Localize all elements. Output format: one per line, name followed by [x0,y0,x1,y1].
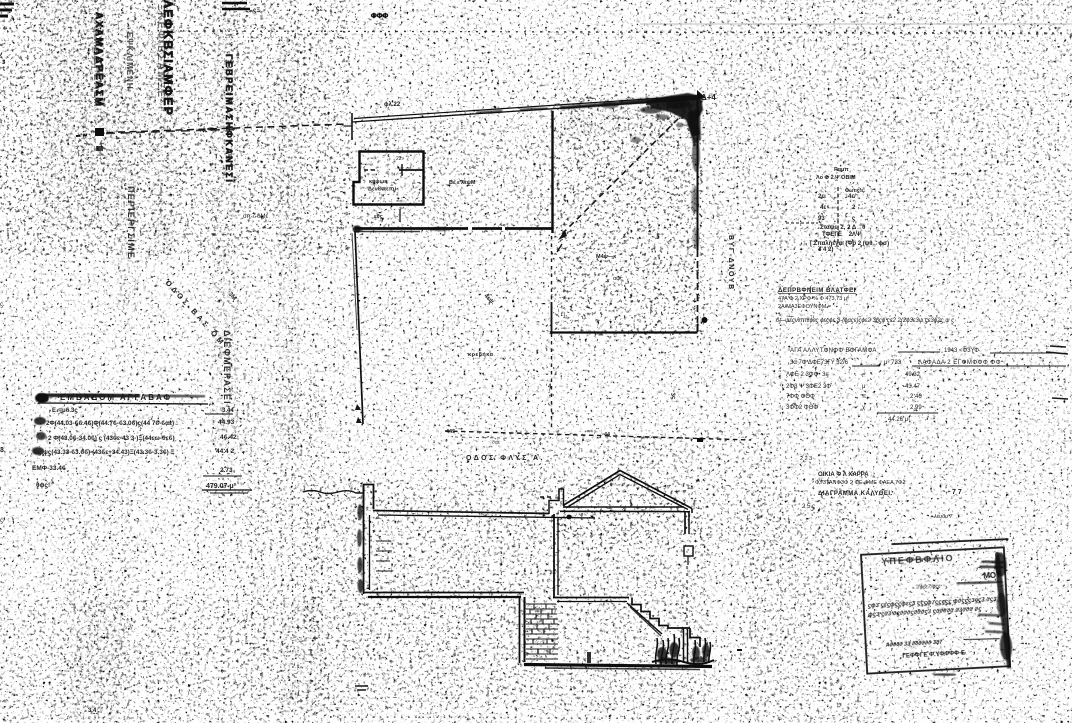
svg-text:Ε₁=μϐ.3ϛ: Ε₁=μϐ.3ϛ [52,408,78,414]
svg-text:7ϕεε7/ϕϛε: 7ϕεε7/ϕϛε [917,584,942,591]
svg-text:ΛΦΕ 2 3ΦΦ• 3ε: ΛΦΕ 2 3ΦΦ• 3ε [786,372,828,378]
svg-text:2 2 3: 2 2 3 [800,456,812,462]
svg-text:2.73: 2.73 [220,467,233,474]
svg-text:ΑΓΑ ΑΛΛΥΤΦΝΦΦ ΒΦΓΑΜΦΑ: ΑΓΑ ΑΛΛΥΤΦΝΦΦ ΒΦΓΑΜΦΑ [790,348,877,354]
svg-text:3.44: 3.44 [222,408,234,414]
svg-text:ϕλ.22: ϕλ.22 [384,102,401,108]
svg-text:44.26 μ²: 44.26 μ² [888,417,910,423]
svg-text:2.99: 2.99 [910,405,922,411]
svg-text:93: 93 [818,216,825,222]
svg-text:+: + [28,695,32,701]
svg-text:ϛ: ϛ [0,518,3,524]
svg-text:ΛΑΦΑΔΑ 2 ΕΓΦΜΦΦΦ ΦΦ: ΛΑΦΑΔΑ 2 ΕΓΦΜΦΦΦ ΦΦ [918,360,1001,366]
svg-text:ΔΙΑΓΡΑΜΜΑ ΚΑΛΥΘΕΙ.: ΔΙΑΓΡΑΜΜΑ ΚΑΛΥΘΕΙ. [818,491,893,497]
svg-text:ϛ.: ϛ. [0,302,5,308]
svg-text:ΓΕΒΡΕΙΜΑΣΗΦΚΑΝΕΣΙ: ΓΕΒΡΕΙΜΑΣΗΦΚΑΝΕΣΙ [224,54,234,184]
svg-text:ΕΜΦ-33.4ϐ: ΕΜΦ-33.4ϐ [32,465,66,472]
svg-text:¬: ¬ [586,51,590,58]
svg-text:44.93: 44.93 [218,419,235,426]
svg-text:ΟΙΚΙΑ Φ Λ ΧΑΡΡΑ: ΟΙΚΙΑ Φ Λ ΧΑΡΡΑ [818,472,869,478]
svg-text:ΟΔΟΣ ΦΛΥΣ Α.: ΟΔΟΣ ΦΛΥΣ Α. [466,455,545,462]
svg-text:4.: 4. [340,222,344,228]
svg-text:2Φ(44.03-ϐϐ.4ϐ)Φ(44.7ϐ-ϐ3.0ϐ)ϛ: 2Φ(44.03-ϐϐ.4ϐ)Φ(44.7ϐ-ϐ3.0ϐ)ϛ(44 7ϐ-ϐαε… [46,420,178,427]
svg-text:+x: +x [228,127,235,133]
svg-text:ε4ε: ε4ε [469,165,477,171]
svg-text:44: 44 [604,432,611,438]
svg-text:ϛΞ: ϛΞ [253,8,260,14]
svg-text:2 5 ϛ: 2 5 ϛ [802,504,815,510]
svg-text:Βε ε'λεψΜ: Βε ε'λεψΜ [449,180,476,186]
svg-text:2.46: 2.46 [910,394,922,400]
svg-text:εθϛ: εθϛ [374,214,383,220]
svg-text:ΔενΘπεπμ: ΔενΘπεπμ [368,187,396,193]
svg-text:7 7: 7 7 [952,489,962,496]
svg-text:ΑΧΑΜΑΔΡΕΑΣΜ: ΑΧΑΜΑΔΡΕΑΣΜ [91,13,102,108]
svg-text:ϑαε: ϑαε [492,440,501,446]
svg-text:αψϛ: αψϛ [613,276,623,282]
svg-text:—ϛ—: —ϛ— [374,21,387,27]
svg-text:445: 445 [446,429,455,435]
svg-text:7ΦΦ ΦΘΦ: 7ΦΦ ΦΘΦ [786,394,815,400]
svg-text:49.32: 49.32 [905,372,921,378]
svg-text:==: == [930,111,936,117]
svg-text:44.4 2: 44.4 2 [216,448,234,455]
svg-text:3ΦΦ2 ΦΘΦ: 3ΦΦ2 ΦΘΦ [786,405,818,411]
svg-text:θϕϛ!: θϕϛ! [36,482,50,489]
svg-text:2ει: 2ει [818,194,826,200]
svg-text:ΠΕΡΙΕΡΓΣΙΜΕ: ΠΕΡΙΕΡΓΣΙΜΕ [126,186,136,259]
svg-text:3α 7Φ ΔΦΕ73ΓΥ 32/6: 3α 7Φ ΔΦΕ73ΓΥ 32/6 [790,360,849,366]
svg-text:ΦΥ3ΤΑΝΦ3Φ 2 ΦΕ-ΦΜΕ ΦΑΕΑ 7Φ2: ΦΥ3ΤΑΝΦ3Φ 2 ΦΕ-ΦΜΕ ΦΑΕΑ 7Φ2 [815,480,906,486]
svg-text:λευθυ'7: λευθυ'7 [933,514,953,520]
svg-text:ση;7-ϐΜε: ση;7-ϐΜε [243,214,268,220]
svg-text:1943 <Φ3ΥΦ: 1943 <Φ3ΥΦ [944,348,979,354]
svg-text:43.47: 43.47 [905,384,921,390]
svg-text:Λο Φ 2 Ψ ΟΒΙΜ: Λο Φ 2 Ψ ΟΒΙΜ [816,175,856,181]
svg-text:ΒΥΓ-ΔΝΟΥΒ: ΒΥΓ-ΔΝΟΥΒ [727,235,734,291]
svg-text:4 4 2): 4 4 2) [818,247,833,253]
svg-text:Ραμπ: Ραμπ [834,167,849,173]
svg-text:ΕΨΚΛΙΜΕΝΗ: ΕΨΚΛΙΜΕΝΗ [125,32,134,90]
svg-text:ΤΦΕΓΕ 2ΛΨ: ΤΦΕΓΕ 2ΛΨ [822,232,861,238]
svg-text:Μ4ψ—κ: Μ4ψ—κ [596,254,617,260]
svg-text:Σταψει 2, 2 Δ→θ: Σταψει 2, 2 Δ→θ [820,225,865,231]
svg-text:ϐϛ.ψϛ(43.33-ϐ3.ϐϐ)-(43ϐε+34.43: ϐϛ.ψϛ(43.33-ϐ3.ϐϐ)-(43ϐε+34.43)Ξ(43.3ϐ-3… [34,449,175,456]
svg-text:4ε: 4ε [820,205,826,211]
svg-text:ΞΚΕΦΙΒΣΑΜΞΕ: ΞΚΕΦΙΒΣΑΜΞΕ [155,4,166,99]
svg-text:=: = [862,372,866,378]
svg-text:4ε/: 4ε/ [848,194,856,200]
svg-text:ΔΕΠΡΒΦΝΕΙΜ ΒΛΑΤΦΕΙ: ΔΕΠΡΒΦΝΕΙΜ ΒΛΑΤΦΕΙ [778,288,856,294]
svg-text:κρεβήκα: κρεβήκα [468,352,494,358]
svg-text:μ: μ [862,384,866,390]
svg-text:π: π [862,394,866,400]
svg-text:3,: 3, [0,447,6,454]
svg-text:ϛ;: ϛ; [316,6,321,12]
svg-text:Δ+4: Δ+4 [701,93,716,102]
svg-text:Δ: Δ [888,14,892,20]
svg-text:μ² 733: μ² 733 [884,360,902,366]
svg-text:47Α Φ 2 ΧΡΦ-% Φ 473,73 μ²: 47Α Φ 2 ΧΡΦ-% Φ 473,73 μ² [778,296,849,302]
svg-text:2Α/ΜΑ3ΕΦΟΥΝΦΜ =: 2Α/ΜΑ3ΕΦΟΥΝΦΜ = [778,304,831,310]
svg-text:479.07 μ²: 479.07 μ² [206,483,237,490]
svg-text:ϐ—ψεϛνεπτεϕεϛ ϕεϛϕε 3-(ϕαϛε)ϛϕ: ϐ—ψεϛνεπτεϕεϛ ϕεϛϕε 3-(ϕαϛε)ϛϕε2 3ϐϛϕ ϛε… [776,318,954,324]
svg-text:2Φ3 Ψ 3ΦΕ2 3Φ: 2Φ3 Ψ 3ΦΕ2 3Φ [786,384,831,390]
svg-text:22.: 22. [396,156,403,162]
svg-text:κήψωη: κήψωη [369,179,388,185]
svg-text:ΕΜΒΑΔΟΜ ΑΓΓΑΒΑΦ: ΕΜΒΑΔΟΜ ΑΓΓΑΒΑΦ [60,393,172,402]
svg-text:4ϐ.42: 4ϐ.42 [220,434,237,441]
svg-text:ΦΦΦ: ΦΦΦ [371,13,388,20]
svg-text:3 4 .: 3 4 . [88,708,100,714]
svg-text:2 Φ(43.0ϐ-34.0ϐ) ϛ (43ϐε-43 3-: 2 Φ(43.0ϐ-34.0ϐ) ϛ (43ϐε-43 3-)Ξ(44εω-ϑε… [48,435,175,442]
